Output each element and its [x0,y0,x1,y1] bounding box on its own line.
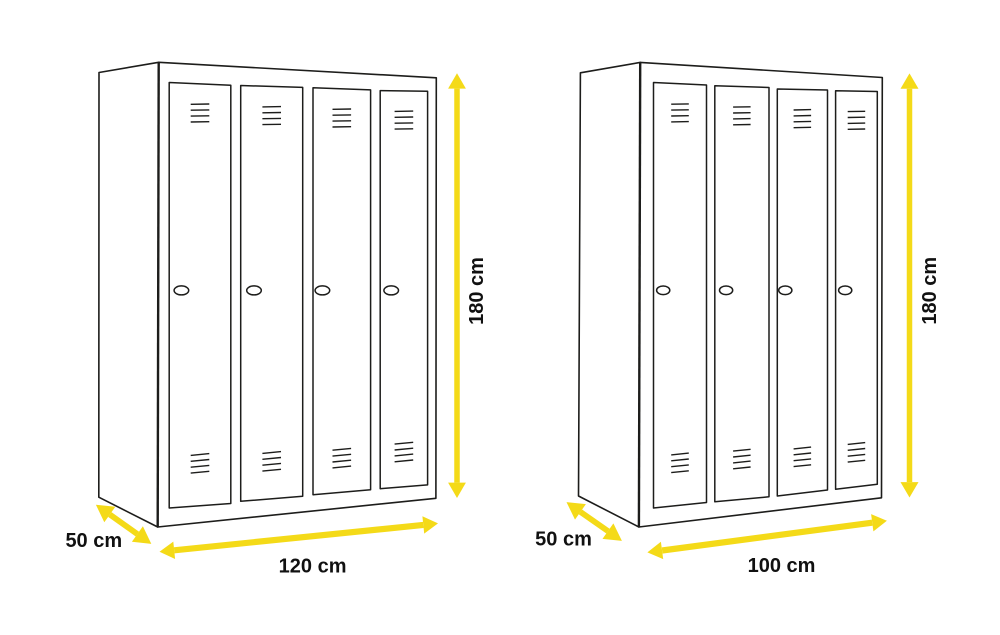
svg-text:50 cm: 50 cm [65,530,122,552]
svg-text:180 cm: 180 cm [919,257,941,325]
svg-text:180 cm: 180 cm [466,257,488,325]
svg-text:100 cm: 100 cm [748,555,816,577]
svg-text:120 cm: 120 cm [279,556,347,578]
svg-text:50 cm: 50 cm [535,529,592,551]
